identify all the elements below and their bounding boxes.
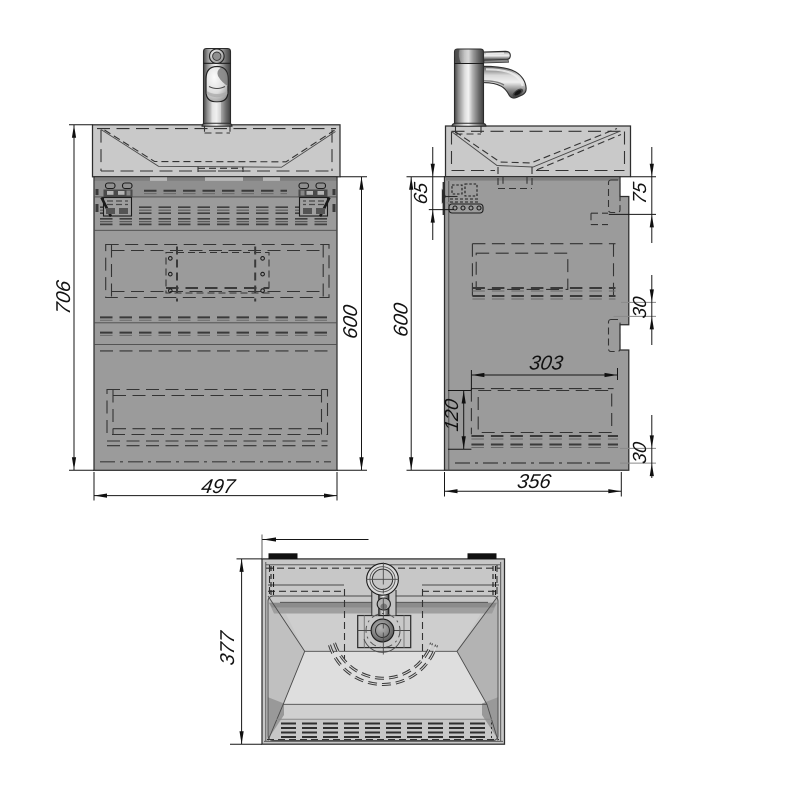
svg-text:356: 356 [516,471,554,493]
svg-text:30: 30 [630,295,651,320]
svg-text:600: 600 [390,301,412,339]
svg-text:706: 706 [53,278,75,316]
svg-text:65: 65 [411,181,432,206]
svg-text:600: 600 [340,303,362,341]
svg-text:30: 30 [630,440,651,465]
svg-text:120: 120 [442,397,463,432]
svg-text:377: 377 [217,629,239,667]
svg-text:303: 303 [528,352,565,374]
svg-text:497: 497 [200,476,238,498]
svg-text:75: 75 [630,181,651,206]
